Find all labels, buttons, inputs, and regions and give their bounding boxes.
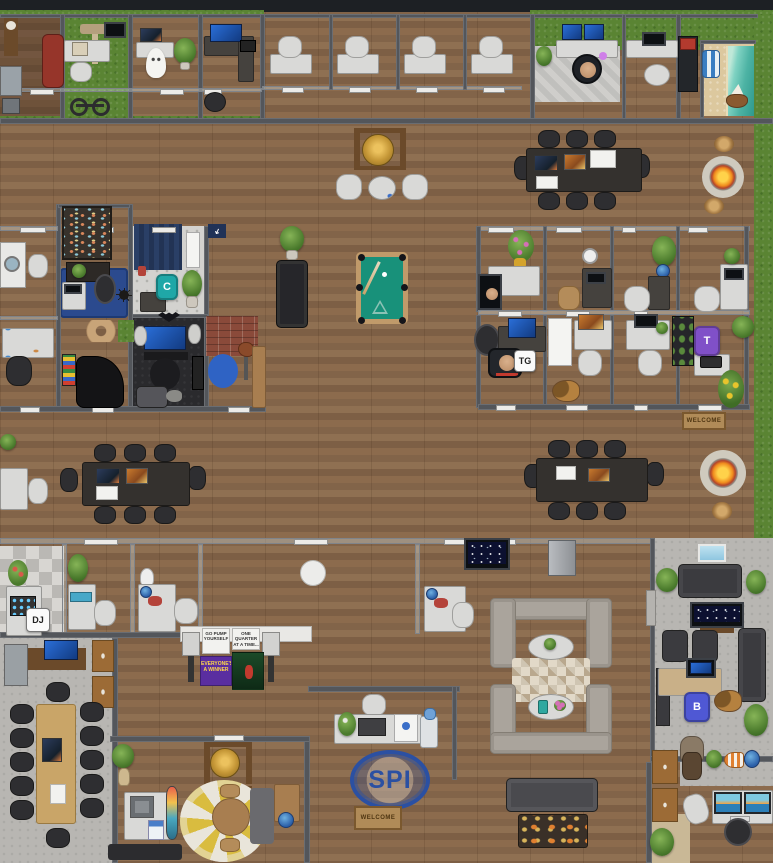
meeting-chair[interactable]: [10, 728, 34, 748]
plant: [174, 38, 196, 64]
plant-shelf: [672, 316, 694, 366]
plant: [656, 568, 678, 592]
booth-chair[interactable]: [278, 36, 302, 58]
armchair-dark[interactable]: [662, 630, 688, 662]
glass-wall: [130, 544, 135, 634]
conference-chair[interactable]: [94, 444, 116, 462]
sofa[interactable]: [490, 598, 516, 668]
monitor[interactable]: [562, 24, 582, 40]
spider-decoration: [116, 288, 132, 302]
poster-one-quarter: ONE QUARTER AT A TIME...: [232, 628, 260, 650]
conference-chair[interactable]: [154, 444, 176, 462]
retro-computer[interactable]: [72, 42, 88, 56]
bench: [108, 844, 182, 860]
gray-rug: [250, 788, 274, 844]
stool[interactable]: [204, 92, 226, 112]
avatar-chair-t[interactable]: T: [694, 326, 720, 356]
laptop[interactable]: [586, 272, 606, 284]
pool-pocket: [401, 284, 408, 291]
flowers: [554, 700, 566, 711]
conference-chair[interactable]: [124, 506, 146, 524]
monitor-screen: [690, 662, 712, 674]
chair[interactable]: [452, 602, 474, 628]
desk: [648, 276, 670, 310]
sofa[interactable]: [586, 598, 612, 668]
conference-chair[interactable]: [60, 468, 78, 492]
plant: [744, 704, 768, 736]
red-armchair: [42, 34, 64, 88]
fish-decoration: [724, 752, 744, 768]
snack-table: [518, 814, 588, 848]
plant: [732, 316, 754, 338]
table-document: [126, 468, 148, 484]
table-document: [588, 468, 610, 482]
door-plate: [214, 735, 244, 741]
door[interactable]: [646, 590, 656, 626]
conference-chair[interactable]: [594, 130, 616, 148]
chair[interactable]: [174, 598, 198, 624]
door-plate: [698, 405, 722, 411]
wall: [56, 204, 61, 408]
wall-main-top: [0, 118, 773, 124]
avatar-chair-c[interactable]: C: [156, 274, 178, 300]
arrow-glyph-icon: ➜: [211, 226, 222, 236]
wall-picture: [140, 28, 162, 42]
meeting-chair[interactable]: [80, 726, 104, 746]
table-document: [96, 468, 120, 484]
conference-chair[interactable]: [188, 466, 206, 490]
wall: [650, 538, 655, 762]
wall: [198, 14, 203, 120]
keyboard: [70, 592, 92, 602]
donut-pouf: [86, 320, 116, 342]
fridge: [548, 540, 576, 576]
conference-chair[interactable]: [576, 502, 598, 520]
wall: [0, 14, 758, 18]
conference-chair[interactable]: [594, 192, 616, 210]
coffee-machine[interactable]: [358, 718, 386, 736]
conference-chair[interactable]: [94, 506, 116, 524]
bean-bag-blue[interactable]: [208, 354, 238, 388]
oval-coffee-table: [528, 694, 574, 720]
poster-go-pump: GO PUMP YOURSELF: [202, 628, 230, 654]
meeting-chair[interactable]: [80, 750, 104, 770]
surfboard: [166, 786, 178, 840]
globe: [278, 812, 294, 828]
clock-face: [6, 21, 16, 30]
avatar-badge-dj[interactable]: DJ: [26, 608, 50, 632]
dog[interactable]: [714, 690, 742, 712]
table-document: [534, 155, 558, 171]
typewriter: [700, 356, 722, 368]
pool-pocket: [358, 254, 365, 261]
meeting-chair[interactable]: [46, 828, 70, 848]
table-document: [50, 784, 66, 804]
plant-pot: [180, 62, 190, 70]
round-table: [644, 64, 670, 86]
art-desk: [2, 328, 54, 358]
equipment: [2, 98, 20, 114]
conference-chair[interactable]: [124, 444, 146, 462]
round-table: [212, 798, 250, 836]
conference-chair[interactable]: [154, 506, 176, 524]
mute-bar: [496, 373, 518, 377]
dark-couch[interactable]: [506, 778, 598, 812]
whiteboard[interactable]: [548, 318, 572, 366]
door-plate: [20, 407, 40, 413]
chair[interactable]: [94, 600, 116, 626]
conference-chair[interactable]: [548, 440, 570, 458]
table-document: [564, 154, 586, 170]
chair[interactable]: [28, 254, 48, 278]
chair[interactable]: [6, 356, 32, 386]
plant: [544, 638, 556, 650]
monitor[interactable]: [686, 658, 716, 678]
red-bowl: [148, 596, 162, 606]
table-document: [96, 486, 118, 500]
conference-chair[interactable]: [646, 462, 664, 486]
printer: [240, 40, 256, 52]
chair[interactable]: [624, 286, 650, 312]
chair[interactable]: [578, 350, 602, 376]
avatar-face: [580, 62, 596, 78]
meeting-chair[interactable]: [80, 702, 104, 722]
wall: [304, 738, 310, 863]
plant: [652, 236, 676, 266]
armchair[interactable]: [336, 174, 362, 200]
meeting-chair[interactable]: [80, 798, 104, 818]
ghost-decoration[interactable]: [146, 48, 166, 78]
wall: [260, 14, 265, 120]
monitor[interactable]: [584, 24, 604, 40]
plant: [0, 434, 16, 450]
wall-sign: [152, 227, 176, 233]
avatar-badge-tg[interactable]: TG: [514, 350, 536, 372]
bicycle-frame: [76, 104, 104, 107]
table-document: [536, 176, 558, 189]
gong[interactable]: [210, 748, 240, 778]
dog[interactable]: [552, 380, 580, 402]
lounge-tv[interactable]: [690, 602, 744, 628]
pool-pocket: [399, 317, 406, 324]
machine: [0, 66, 22, 96]
door-plate: [416, 87, 438, 93]
arrow-sign: ➜: [208, 224, 226, 238]
grass-right-strip: [754, 14, 773, 538]
gong-stand: [354, 128, 406, 133]
chair[interactable]: [220, 838, 240, 852]
plant: [182, 270, 202, 298]
door[interactable]: [652, 750, 678, 784]
wall: [543, 226, 547, 312]
small-tv[interactable]: [64, 284, 82, 294]
stump-seat[interactable]: [712, 502, 732, 520]
globe: [744, 750, 760, 768]
booth-chair[interactable]: [345, 36, 369, 58]
laptop[interactable]: [634, 314, 658, 328]
glass-wall: [415, 544, 420, 634]
grass-tray: [118, 320, 134, 342]
gong-stand: [354, 166, 406, 170]
conference-chair[interactable]: [566, 130, 588, 148]
door-plate: [349, 87, 371, 93]
conference-chair[interactable]: [566, 192, 588, 210]
laptop[interactable]: [578, 314, 604, 330]
pool-pocket: [399, 254, 406, 261]
chair[interactable]: [558, 286, 580, 310]
door-plate: [84, 539, 118, 545]
coffee-table: [368, 176, 396, 200]
glass-wall: [0, 316, 58, 320]
wall: [128, 204, 133, 408]
sofa[interactable]: [490, 732, 612, 754]
lounge-tv[interactable]: [464, 538, 510, 570]
stump-seat[interactable]: [714, 136, 734, 152]
speaker-stand: [268, 656, 274, 682]
laptop[interactable]: [642, 32, 666, 46]
conference-chair[interactable]: [604, 440, 626, 458]
meeting-tv[interactable]: [44, 640, 78, 660]
door-plate: [228, 407, 250, 413]
chair[interactable]: [220, 784, 240, 798]
plant: [72, 264, 86, 278]
speaker: [192, 356, 204, 390]
red-plant: [8, 560, 28, 586]
chair[interactable]: [362, 694, 386, 716]
wood-counter: [252, 346, 266, 408]
sailboat: [726, 94, 748, 108]
door-plate: [498, 311, 522, 317]
chair[interactable]: [638, 350, 662, 376]
table-document: [590, 150, 616, 168]
poster-figure: [245, 665, 253, 679]
floor-lamp-sphere: [300, 560, 326, 586]
door-plate: [30, 89, 54, 95]
bar-cart: [4, 644, 28, 686]
speaker-stand: [188, 656, 194, 682]
door-plate: [622, 227, 636, 233]
teddy-bear: [134, 326, 147, 346]
chair[interactable]: [28, 478, 48, 504]
tv-screen: [694, 606, 740, 622]
plant: [706, 750, 722, 768]
wall: [530, 14, 535, 120]
wall: [622, 14, 626, 120]
pool-pocket: [358, 317, 365, 324]
door-plate: [20, 227, 46, 233]
bar-shelf: [62, 206, 112, 260]
conference-chair[interactable]: [548, 502, 570, 520]
water-bottle: [424, 708, 436, 720]
meeting-chair[interactable]: [46, 682, 70, 702]
small-couch[interactable]: [136, 386, 168, 408]
bottle: [148, 820, 164, 840]
meeting-table: [36, 704, 76, 824]
wall: [676, 226, 680, 312]
gameboy[interactable]: [538, 700, 548, 714]
booth-divider: [396, 14, 400, 90]
welcome-mat: WELCOME: [682, 412, 726, 430]
meeting-chair[interactable]: [80, 774, 104, 794]
avatar-chair-b[interactable]: B: [684, 692, 710, 722]
cat[interactable]: [166, 390, 182, 402]
plant: [656, 322, 668, 334]
monitor[interactable]: [714, 792, 742, 814]
red-toolbox: [680, 38, 696, 50]
door-plate: [556, 227, 582, 233]
conference-chair[interactable]: [604, 502, 626, 520]
plant: [536, 46, 552, 66]
table-document: [556, 466, 576, 480]
speaker: [182, 632, 200, 656]
fire-pit[interactable]: [700, 450, 746, 496]
gong-stand: [400, 128, 406, 168]
board-logo: [402, 722, 410, 730]
plant-pot: [286, 250, 298, 260]
monitor[interactable]: [744, 792, 771, 814]
door[interactable]: [652, 788, 678, 822]
video-screen[interactable]: [478, 274, 502, 310]
monitor[interactable]: [508, 318, 536, 338]
coat-rack: [682, 752, 702, 780]
chair[interactable]: [694, 286, 720, 312]
gong[interactable]: [362, 134, 394, 166]
grand-piano[interactable]: [76, 356, 124, 408]
wall-clock: [582, 248, 598, 264]
gong-stand: [354, 128, 360, 168]
glass-wall: [62, 544, 67, 634]
bicycle-wheel: [92, 98, 110, 116]
plant: [650, 828, 674, 856]
flower-vase: [338, 712, 356, 736]
plant: [68, 554, 88, 582]
desk: [68, 584, 96, 630]
red-mug: [138, 266, 146, 276]
booth-divider: [463, 14, 467, 90]
dark-couch[interactable]: [678, 564, 742, 598]
door-plate: [294, 539, 328, 545]
status-dot: [599, 52, 607, 60]
appliance-door: [4, 256, 20, 272]
wall: [308, 686, 460, 692]
door-plate: [566, 405, 588, 411]
bicycle-wheel: [70, 98, 88, 116]
cue-ball: [382, 272, 387, 277]
plant-pot: [186, 296, 198, 308]
gong-stand: [246, 742, 252, 784]
black-couch[interactable]: [276, 260, 308, 328]
office-chair[interactable]: [94, 274, 116, 304]
meeting-chair[interactable]: [10, 704, 34, 724]
glass-wall: [198, 544, 203, 634]
gaming-tv[interactable]: [144, 326, 186, 350]
printer-3d[interactable]: [130, 796, 154, 818]
pool-pocket: [356, 284, 363, 291]
door-plate: [488, 227, 514, 233]
dark-couch[interactable]: [738, 628, 766, 702]
laptop[interactable]: [724, 268, 744, 280]
meeting-chair[interactable]: [10, 752, 34, 772]
door-plate: [688, 227, 708, 233]
whiteboard[interactable]: [186, 232, 200, 268]
teddy-bear: [188, 324, 201, 344]
tv-screen: [468, 542, 506, 564]
window: [698, 544, 726, 562]
user-video-avatar[interactable]: [572, 54, 602, 84]
armchair[interactable]: [402, 174, 428, 200]
booth-divider: [329, 14, 333, 90]
arcade-poster: [232, 652, 264, 690]
office-chair[interactable]: [724, 818, 752, 846]
booth-chair[interactable]: [412, 36, 436, 58]
meeting-chair[interactable]: [10, 776, 34, 796]
avatar-face: [486, 288, 498, 300]
floor-logo-spi: SPI: [350, 750, 430, 810]
monitor[interactable]: [210, 24, 242, 42]
plant: [746, 570, 766, 594]
wall: [700, 40, 756, 44]
desk: [0, 468, 28, 510]
avatar-face: [499, 355, 515, 371]
wall: [128, 14, 133, 120]
booth-chair[interactable]: [479, 36, 503, 58]
poster-everyones-a-winner: EVERYONE'S A WINNER: [200, 656, 232, 686]
conference-chair[interactable]: [576, 440, 598, 458]
conference-chair[interactable]: [538, 130, 560, 148]
wall-picture: [104, 22, 126, 38]
fire-pit[interactable]: [702, 156, 744, 198]
door-plate: [282, 87, 304, 93]
stump-seat[interactable]: [704, 198, 724, 214]
red-bowl: [434, 598, 448, 608]
conference-chair[interactable]: [538, 192, 560, 210]
table-document: [42, 738, 62, 762]
water-cooler[interactable]: [420, 716, 438, 748]
gong-stand: [204, 742, 252, 747]
meeting-chair[interactable]: [10, 800, 34, 820]
chair[interactable]: [70, 62, 92, 82]
door-plate: [634, 405, 648, 411]
plant: [280, 226, 304, 252]
door[interactable]: [92, 640, 114, 672]
welcome-mat: WELCOME: [354, 806, 402, 830]
plant: [724, 248, 740, 264]
record-shelf: [62, 354, 76, 386]
door-plate: [160, 89, 184, 95]
virtual-office-map[interactable]: C ➜: [0, 0, 773, 863]
sunflowers: [718, 370, 744, 408]
speaker: [262, 632, 280, 656]
door-plate: [483, 87, 505, 93]
door-plate: [496, 405, 516, 411]
vase: [118, 768, 130, 786]
plant: [112, 744, 134, 768]
beach-chair[interactable]: [702, 50, 720, 78]
wall: [452, 686, 457, 780]
